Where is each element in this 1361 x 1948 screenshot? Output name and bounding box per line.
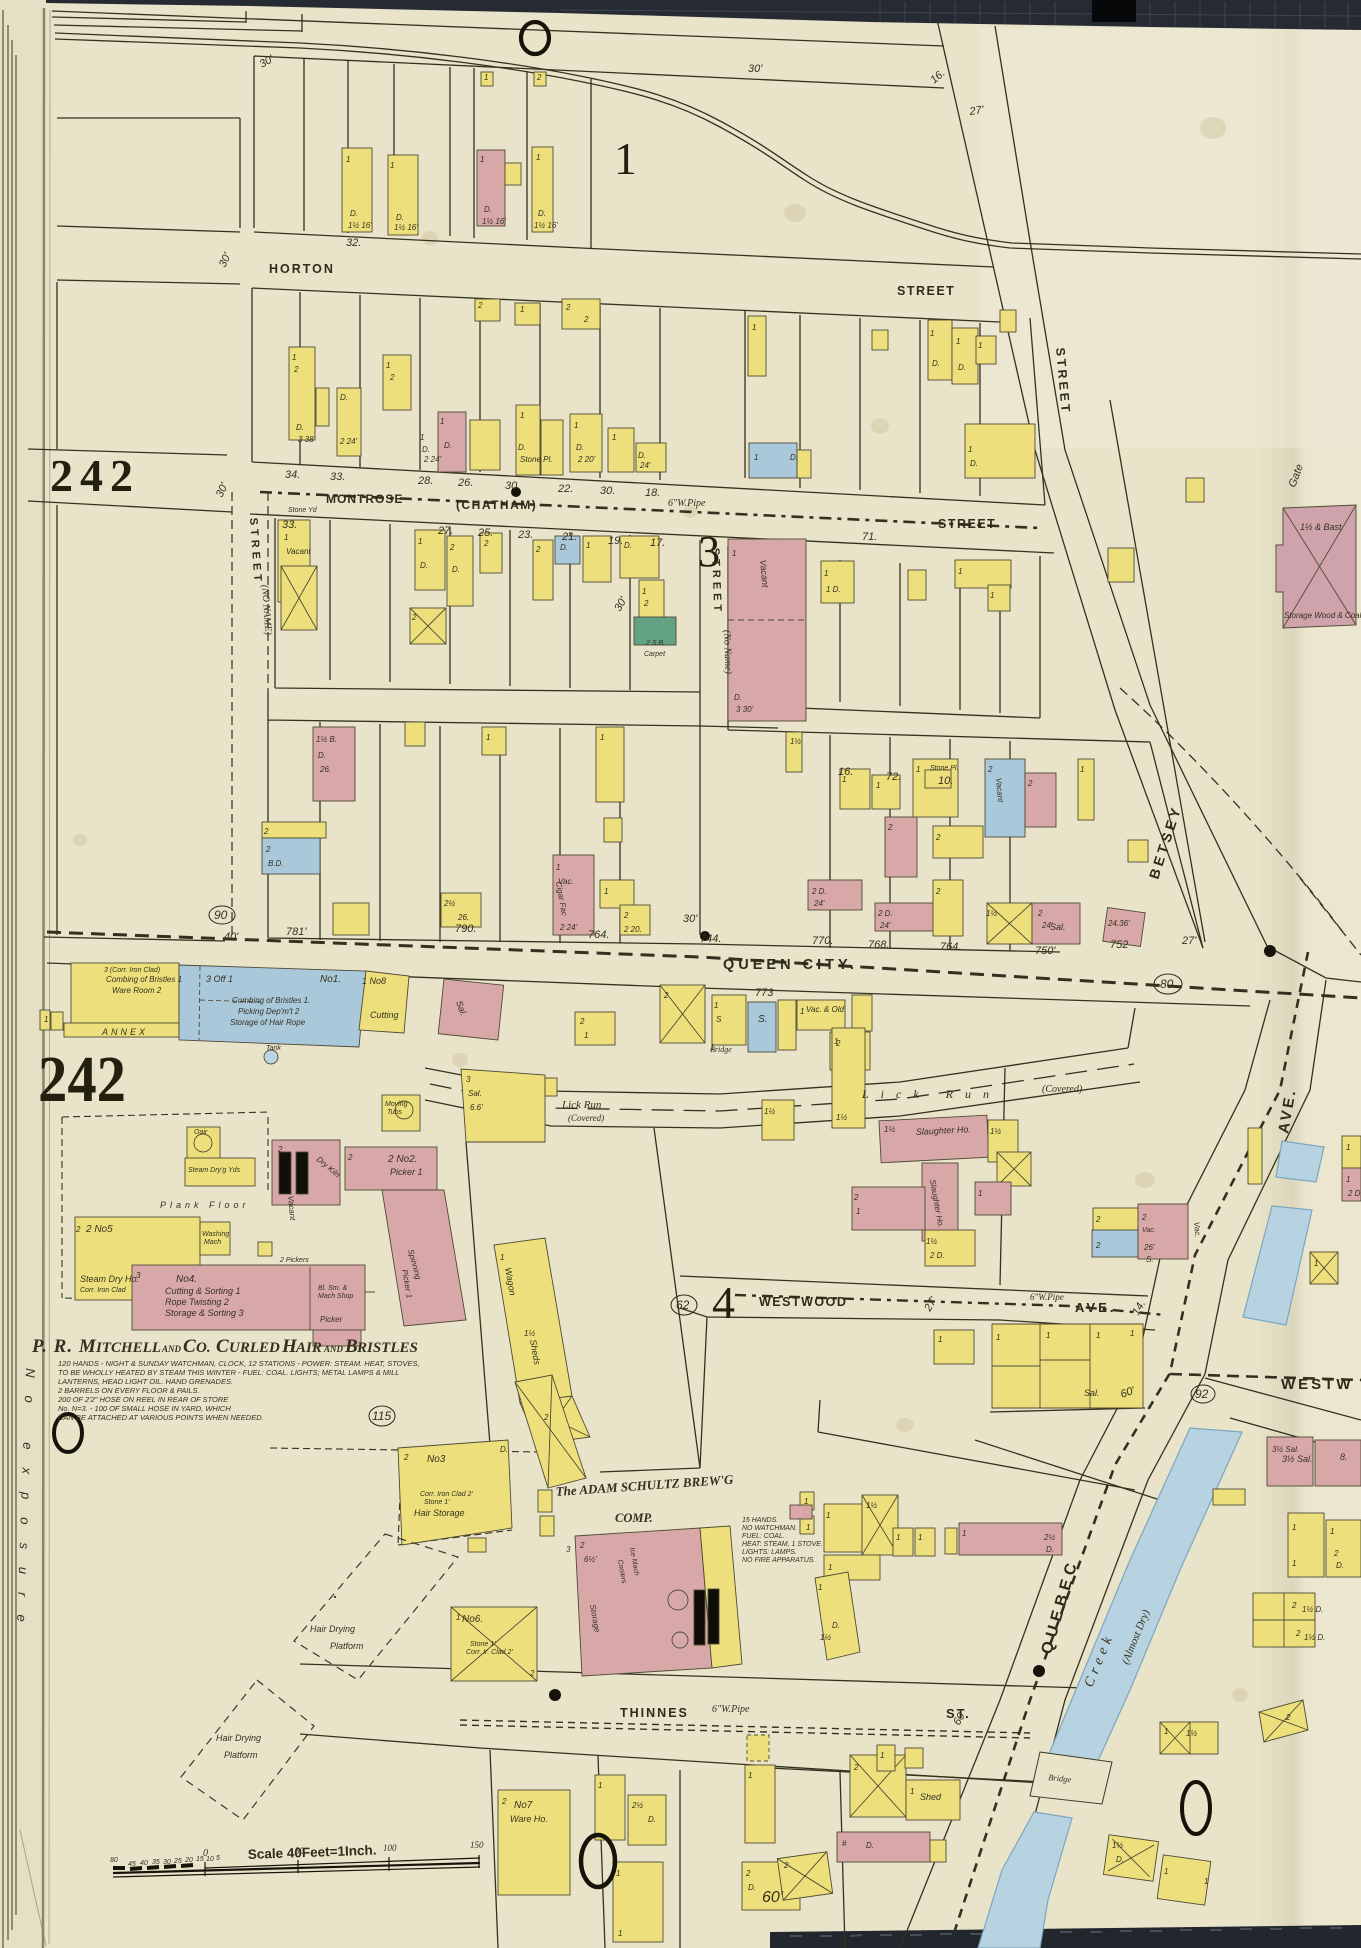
svg-text:No. N=3. - 100 OF SMALL HOSE I: No. N=3. - 100 OF SMALL HOSE IN YARD, WH… [58,1404,231,1413]
svg-text:1: 1 [284,533,288,542]
svg-text:1: 1 [584,1031,588,1040]
svg-text:24': 24' [813,899,825,908]
svg-text:2: 2 [483,539,489,548]
svg-text:2: 2 [783,1861,789,1870]
svg-text:Steam Dry Ho.: Steam Dry Ho. [80,1274,139,1284]
svg-text:No3: No3 [427,1454,446,1465]
svg-text:26.: 26. [457,913,469,922]
svg-text:1: 1 [834,1037,838,1046]
svg-text:1½ 16': 1½ 16' [348,221,372,230]
svg-text:2: 2 [1285,1713,1291,1722]
svg-text:D.: D. [350,209,358,218]
svg-text:19.: 19. [608,535,623,547]
svg-text:1: 1 [710,1043,714,1052]
svg-text:HORTON: HORTON [269,262,335,276]
svg-text:Picking Dep'm't 2: Picking Dep'm't 2 [238,1007,300,1016]
svg-text:5: 5 [216,1855,220,1862]
svg-text:2 D.: 2 D. [877,909,893,918]
svg-text:1: 1 [996,1333,1000,1342]
svg-text:62: 62 [676,1298,690,1312]
svg-text:21.: 21. [561,531,577,543]
svg-text:B.D.: B.D. [268,859,284,868]
svg-text:2: 2 [853,1193,859,1202]
svg-text:Carpet: Carpet [644,651,666,658]
svg-text:Hair Drying: Hair Drying [216,1733,261,1743]
svg-text:1: 1 [614,133,637,184]
svg-text:1: 1 [44,1015,48,1024]
svg-text:1 No8: 1 No8 [362,976,386,986]
svg-text:71.: 71. [862,531,877,543]
svg-text:C: C [183,1336,196,1357]
svg-text:1: 1 [418,537,422,546]
svg-text:2: 2 [745,1869,751,1878]
svg-text:AND: AND [323,1344,344,1354]
svg-text:Hair Storage: Hair Storage [414,1508,465,1518]
svg-text:1: 1 [748,1771,752,1780]
svg-text:1: 1 [962,1529,966,1538]
svg-text:1: 1 [938,1335,942,1344]
svg-text:1½: 1½ [866,1501,877,1510]
svg-text:Vac. & Old: Vac. & Old [806,1005,844,1014]
svg-text:D.: D. [318,751,326,760]
svg-text:STREET: STREET [897,284,955,298]
svg-text:RISTLES: RISTLES [356,1340,418,1356]
svg-text:Moving: Moving [385,1101,408,1108]
svg-text:2: 2 [565,303,571,312]
svg-text:1: 1 [990,591,994,600]
svg-text:(CHATHAM): (CHATHAM) [456,498,537,512]
svg-text:2 D.: 2 D. [1347,1189,1361,1198]
svg-text:1: 1 [500,1253,504,1262]
svg-text:2½: 2½ [631,1801,643,1810]
svg-text:2½: 2½ [443,899,455,908]
svg-text:1: 1 [752,323,756,332]
svg-text:1: 1 [1204,1877,1208,1886]
svg-text:Ware Room 2: Ware Room 2 [112,986,162,995]
svg-text:744.: 744. [700,933,721,945]
svg-text:60': 60' [762,1889,784,1906]
svg-text:33.: 33. [282,519,297,531]
svg-text:1: 1 [818,1583,822,1592]
svg-text:1: 1 [536,153,540,162]
svg-text:100: 100 [383,1843,397,1853]
svg-text:1½ & Bast: 1½ & Bast [1300,522,1342,532]
svg-text:MONTROSE: MONTROSE [326,492,403,506]
svg-text:1: 1 [958,567,962,576]
svg-text:1: 1 [1330,1527,1334,1536]
svg-text:2: 2 [1027,779,1033,788]
svg-text:1½: 1½ [790,737,801,746]
svg-text:Platform: Platform [224,1750,258,1760]
svg-text:Corr. Ir. Clad 2': Corr. Ir. Clad 2' [466,1649,513,1656]
svg-text:1: 1 [420,433,424,442]
svg-text:D.: D. [734,693,742,702]
svg-text:242: 242 [38,1043,126,1116]
svg-text:2: 2 [389,373,395,382]
svg-text:2: 2 [543,1413,549,1422]
svg-text:1: 1 [896,1533,900,1542]
svg-text:Vacant: Vacant [286,547,311,556]
svg-text:2 No2.: 2 No2. [387,1154,417,1165]
svg-text:D.: D. [576,443,584,452]
svg-text:Platform: Platform [330,1641,364,1651]
svg-text:768.: 768. [868,939,889,951]
svg-text:150: 150 [470,1840,484,1850]
svg-text:1: 1 [456,1613,460,1622]
svg-text:Lick Run: Lick Run [861,1087,1001,1101]
svg-text:Lick Run: Lick Run [561,1099,602,1111]
svg-text:(No Name): (No Name) [721,630,734,675]
svg-text:1½: 1½ [764,1107,775,1116]
svg-text:Tubs: Tubs [387,1109,403,1116]
svg-text:D.: D. [790,453,798,462]
svg-text:8.: 8. [1340,1452,1348,1462]
svg-text:30.: 30. [505,480,520,492]
svg-text:2 D.: 2 D. [811,887,827,896]
svg-text:6"W.Pipe: 6"W.Pipe [712,1704,750,1715]
svg-text:200 OF 2'2" HOSE ON REEL IN RE: 200 OF 2'2" HOSE ON REEL IN REAR OF STOR… [57,1395,229,1404]
svg-text:26': 26' [1143,1243,1155,1252]
svg-text:1½ D.: 1½ D. [1304,1633,1325,1642]
svg-text:1: 1 [642,587,646,596]
svg-text:D.: D. [340,393,348,402]
svg-text:2: 2 [643,599,649,608]
svg-text:D.: D. [452,565,460,574]
svg-text:S.: S. [1146,1255,1154,1264]
svg-text:D.: D. [484,205,492,214]
svg-text:2: 2 [1095,1241,1101,1250]
svg-text:26.: 26. [457,477,473,489]
svg-text:1: 1 [1046,1331,1050,1340]
svg-text:2 Pickers: 2 Pickers [279,1257,309,1264]
svg-text:1: 1 [618,1929,622,1938]
svg-text:TO BE WHOLLY HEATED BY STEAM T: TO BE WHOLLY HEATED BY STEAM THIS WINTER… [58,1368,399,1377]
svg-text:1: 1 [978,341,982,350]
svg-text:1: 1 [916,765,920,774]
svg-text:WESTW: WESTW [1281,1376,1354,1393]
svg-text:28.: 28. [417,475,433,487]
svg-text:3 30': 3 30' [736,705,754,714]
svg-text:THINNES: THINNES [620,1706,689,1720]
svg-text:Vac.: Vac. [558,877,574,886]
svg-text:752: 752 [1110,939,1128,951]
svg-text:2: 2 [853,1763,859,1772]
svg-text:24': 24' [1041,921,1053,930]
svg-text:2: 2 [583,315,589,324]
svg-text:1½ D.: 1½ D. [1302,1605,1323,1614]
svg-text:764.: 764. [940,941,961,953]
svg-text:2: 2 [887,823,893,832]
svg-text:1: 1 [440,417,444,426]
svg-text:1: 1 [1130,1329,1134,1338]
svg-text:2: 2 [501,1797,507,1806]
svg-text:D.: D. [444,441,452,450]
svg-text:2: 2 [579,1017,585,1026]
svg-text:3½ Sal.: 3½ Sal. [1282,1454,1313,1464]
svg-text:10.: 10. [938,775,953,787]
svg-text:1: 1 [586,541,590,550]
svg-text:CAN BE ATTACHED AT VARIOUS POI: CAN BE ATTACHED AT VARIOUS POINTS WHEN N… [58,1413,264,1422]
svg-text:NO FIRE APPARATUS.: NO FIRE APPARATUS. [742,1557,815,1564]
svg-text:30': 30' [748,63,763,75]
svg-text:D.: D. [1046,1545,1054,1554]
svg-text:1: 1 [754,453,758,462]
svg-text:1: 1 [842,775,846,784]
svg-text:1: 1 [826,1511,830,1520]
svg-text:LANTERNS, HEAD LIGHT OIL. HAND: LANTERNS, HEAD LIGHT OIL. HAND GRENADES. [58,1377,233,1386]
svg-text:17.: 17. [650,537,665,549]
svg-text:2: 2 [623,911,629,920]
svg-text:D.: D. [1116,1855,1124,1864]
svg-text:1: 1 [600,733,604,742]
svg-text:15 HANDS.: 15 HANDS. [742,1517,778,1524]
svg-text:1: 1 [1096,1331,1100,1340]
svg-text:2: 2 [987,765,993,774]
svg-text:40': 40' [224,931,239,943]
svg-text:QUEEN CITY.: QUEEN CITY. [723,957,858,973]
svg-text:Corr. Iron Clad 2': Corr. Iron Clad 2' [420,1491,473,1498]
svg-text:1½ 16': 1½ 16' [394,223,418,232]
svg-text:LIGHTS: LAMPS.: LIGHTS: LAMPS. [742,1549,797,1556]
svg-text:Picker 1: Picker 1 [390,1167,423,1177]
svg-text:1½: 1½ [836,1113,847,1122]
svg-text:6.6': 6.6' [470,1103,483,1112]
svg-text:30: 30 [163,1859,171,1866]
svg-text:Stone 1': Stone 1' [470,1641,496,1648]
svg-text:WESTWOOD: WESTWOOD [759,1295,847,1309]
svg-text:1: 1 [910,1787,914,1796]
svg-text:(Covered): (Covered) [568,1113,604,1123]
svg-text:Hair Drying: Hair Drying [310,1624,355,1634]
svg-text:1: 1 [804,1497,808,1506]
svg-text:1: 1 [876,781,880,790]
svg-text:1: 1 [956,337,960,346]
svg-text:1 D.: 1 D. [826,585,841,594]
svg-text:D.: D. [638,451,646,460]
svg-text:Storage & Sorting 3: Storage & Sorting 3 [165,1308,244,1318]
svg-text:6"W.Pipe: 6"W.Pipe [668,498,706,509]
svg-text:2: 2 [1037,909,1043,918]
svg-text:1: 1 [880,1751,884,1760]
svg-text:1: 1 [1080,765,1084,774]
svg-text:1: 1 [1292,1559,1296,1568]
svg-text:Corr. Iron Clad: Corr. Iron Clad [80,1287,127,1294]
svg-text:No4.: No4. [176,1274,197,1285]
svg-text:1: 1 [390,161,394,170]
svg-text:FUEL: COAL.: FUEL: COAL. [742,1533,785,1540]
svg-text:Storage of Hair Rope: Storage of Hair Rope [230,1018,306,1027]
svg-text:1½: 1½ [820,1633,831,1642]
svg-text:2 20.: 2 20. [623,925,642,934]
svg-text:1: 1 [732,549,736,558]
svg-text:(Covered): (Covered) [1042,1084,1083,1095]
svg-text:790.: 790. [455,923,476,935]
svg-text:2: 2 [1141,1213,1147,1222]
svg-text:33.: 33. [330,471,345,483]
svg-text:Stone Pl.: Stone Pl. [930,765,958,772]
svg-text:Shed: Shed [920,1792,942,1802]
svg-text:Washing: Washing [202,1231,229,1238]
svg-text:Stone Yd: Stone Yd [288,507,318,514]
svg-text:20: 20 [184,1857,193,1864]
svg-text:Stone Pl.: Stone Pl. [520,455,552,464]
svg-text:27': 27' [968,104,986,118]
svg-text:2: 2 [579,1541,585,1550]
svg-text:2 24': 2 24' [339,437,358,446]
svg-text:D.: D. [538,209,546,218]
svg-text:D.: D. [748,1883,756,1892]
svg-text:C: C [216,1336,229,1357]
svg-text:D.: D. [648,1815,656,1824]
svg-text:1: 1 [824,569,828,578]
svg-text:1½ 16': 1½ 16' [534,221,558,230]
svg-text:Picker: Picker [320,1315,343,1324]
svg-text:Stone 1': Stone 1' [424,1499,450,1506]
svg-text:Combing of Bristles 1.: Combing of Bristles 1. [232,996,310,1005]
svg-text:80: 80 [110,1857,118,1864]
svg-text:3 Off 1: 3 Off 1 [206,974,233,984]
svg-text:45: 45 [128,1861,136,1868]
svg-text:1: 1 [714,1001,718,1010]
svg-text:32.: 32. [346,237,361,249]
svg-text:1: 1 [556,863,560,872]
svg-text:Oair: Oair [194,1129,208,1136]
svg-text:1: 1 [806,1523,810,1532]
svg-text:ANNEX: ANNEX [101,1027,148,1037]
svg-text:D.: D. [560,543,568,552]
svg-text:1: 1 [800,1007,804,1016]
svg-text:Bl. Sm. &: Bl. Sm. & [318,1285,348,1292]
svg-text:Vac.: Vac. [1192,1221,1202,1237]
svg-text:Storage Wood & Coal: Storage Wood & Coal [1284,611,1361,620]
svg-text:0: 0 [203,1848,208,1859]
svg-text:No1.: No1. [320,974,341,985]
svg-text:26.: 26. [319,765,331,774]
svg-text:2: 2 [449,543,455,552]
svg-text:STREET: STREET [709,548,723,616]
svg-text:1½ 16': 1½ 16' [482,217,506,226]
svg-text:Mach: Mach [204,1239,221,1246]
svg-text:AVE.: AVE. [1075,1300,1116,1315]
svg-text:23.: 23. [517,529,533,541]
svg-text:1: 1 [346,155,350,164]
svg-text:COMP.: COMP. [615,1511,653,1525]
svg-text:242: 242 [50,450,140,501]
svg-text:Cutting & Sorting 1: Cutting & Sorting 1 [165,1286,241,1296]
svg-text:1: 1 [598,1781,602,1790]
svg-text:3½ Sal.: 3½ Sal. [1272,1445,1299,1454]
svg-text:1: 1 [612,433,616,442]
svg-text:115: 115 [372,1409,391,1423]
svg-text:72.: 72. [886,771,901,783]
svg-text:D.: D. [422,445,430,454]
svg-text:D.: D. [932,359,940,368]
svg-text:1½: 1½ [524,1329,535,1338]
svg-text:D.: D. [866,1841,874,1850]
svg-text:2: 2 [535,545,541,554]
svg-text:3: 3 [466,1075,471,1084]
svg-text:1: 1 [930,329,934,338]
svg-text:24.36': 24.36' [1107,919,1130,928]
svg-text:18.: 18. [645,487,660,499]
svg-text:S: S [716,1015,722,1024]
svg-text:2: 2 [263,827,269,836]
svg-text:Ware Ho.: Ware Ho. [510,1814,548,1824]
svg-text:No7: No7 [514,1800,533,1811]
svg-text:2: 2 [1295,1629,1301,1638]
svg-text:Combing of Bristles 1: Combing of Bristles 1 [106,975,182,984]
svg-text:2 D.: 2 D. [929,1251,945,1260]
svg-text:2 No5: 2 No5 [85,1224,113,1235]
svg-text:HEAT: STEAM, 1 STOVE.: HEAT: STEAM, 1 STOVE. [742,1541,823,1548]
svg-text:1: 1 [1292,1523,1296,1532]
svg-text:2: 2 [536,73,542,82]
svg-text:27.: 27. [437,525,453,537]
svg-text:Cutting: Cutting [370,1010,399,1020]
svg-text:1: 1 [978,1189,982,1198]
svg-text:Sal.: Sal. [468,1089,482,1098]
svg-text:764.: 764. [588,929,609,941]
svg-text:6½': 6½' [584,1555,597,1564]
svg-text:D.: D. [420,561,428,570]
svg-text:2 BARRELS ON EVERY FLOOR & PAI: 2 BARRELS ON EVERY FLOOR & PAILS. [57,1386,200,1395]
svg-text:O.: O. [196,1340,211,1356]
svg-text:2: 2 [1291,1601,1297,1610]
svg-text:1: 1 [486,733,490,742]
svg-text:25.: 25. [477,527,493,539]
svg-text:1½ B.: 1½ B. [316,735,337,744]
svg-text:1: 1 [1346,1175,1350,1184]
svg-text:1: 1 [968,445,972,454]
svg-text:750': 750' [1035,945,1056,957]
svg-text:24': 24' [879,921,891,930]
svg-text:3: 3 [136,1271,141,1280]
svg-text:B: B [344,1336,358,1357]
svg-text:STREET: STREET [938,517,996,531]
svg-text:1: 1 [1164,1867,1168,1876]
svg-text:3 38': 3 38' [298,435,316,444]
svg-text:No6.: No6. [462,1614,483,1625]
svg-text:D.: D. [500,1445,508,1454]
svg-text:80: 80 [1160,977,1174,991]
svg-text:2: 2 [293,365,299,374]
svg-text:#: # [842,1839,847,1848]
svg-text:2: 2 [265,845,271,854]
svg-text:6"W.Pipe: 6"W.Pipe [1030,1292,1064,1302]
svg-text:D.: D. [970,459,978,468]
svg-text:27': 27' [1181,935,1197,947]
svg-text:Mach Shop: Mach Shop [318,1293,354,1300]
svg-text:22.: 22. [557,483,573,495]
svg-text:1: 1 [292,353,296,362]
svg-text:NO WATCHMAN.: NO WATCHMAN. [742,1525,797,1532]
svg-text:Rope Twisting 2: Rope Twisting 2 [165,1297,229,1307]
svg-text:D.: D. [518,443,526,452]
svg-text:2: 2 [935,833,941,842]
svg-text:1: 1 [386,361,390,370]
svg-text:URLED: URLED [229,1340,280,1356]
svg-text:3: 3 [566,1545,571,1554]
svg-text:3 (Corr. Iron Clad): 3 (Corr. Iron Clad) [104,967,160,974]
svg-text:Plank Floor: Plank Floor [160,1200,250,1210]
svg-text:1: 1 [1346,1143,1350,1152]
svg-text:90: 90 [214,908,228,922]
svg-text:50: 50 [295,1846,305,1856]
svg-text:2: 2 [529,1669,535,1678]
svg-text:2: 2 [75,1225,81,1234]
svg-text:D.: D. [1336,1561,1344,1570]
svg-text:D.: D. [296,423,304,432]
